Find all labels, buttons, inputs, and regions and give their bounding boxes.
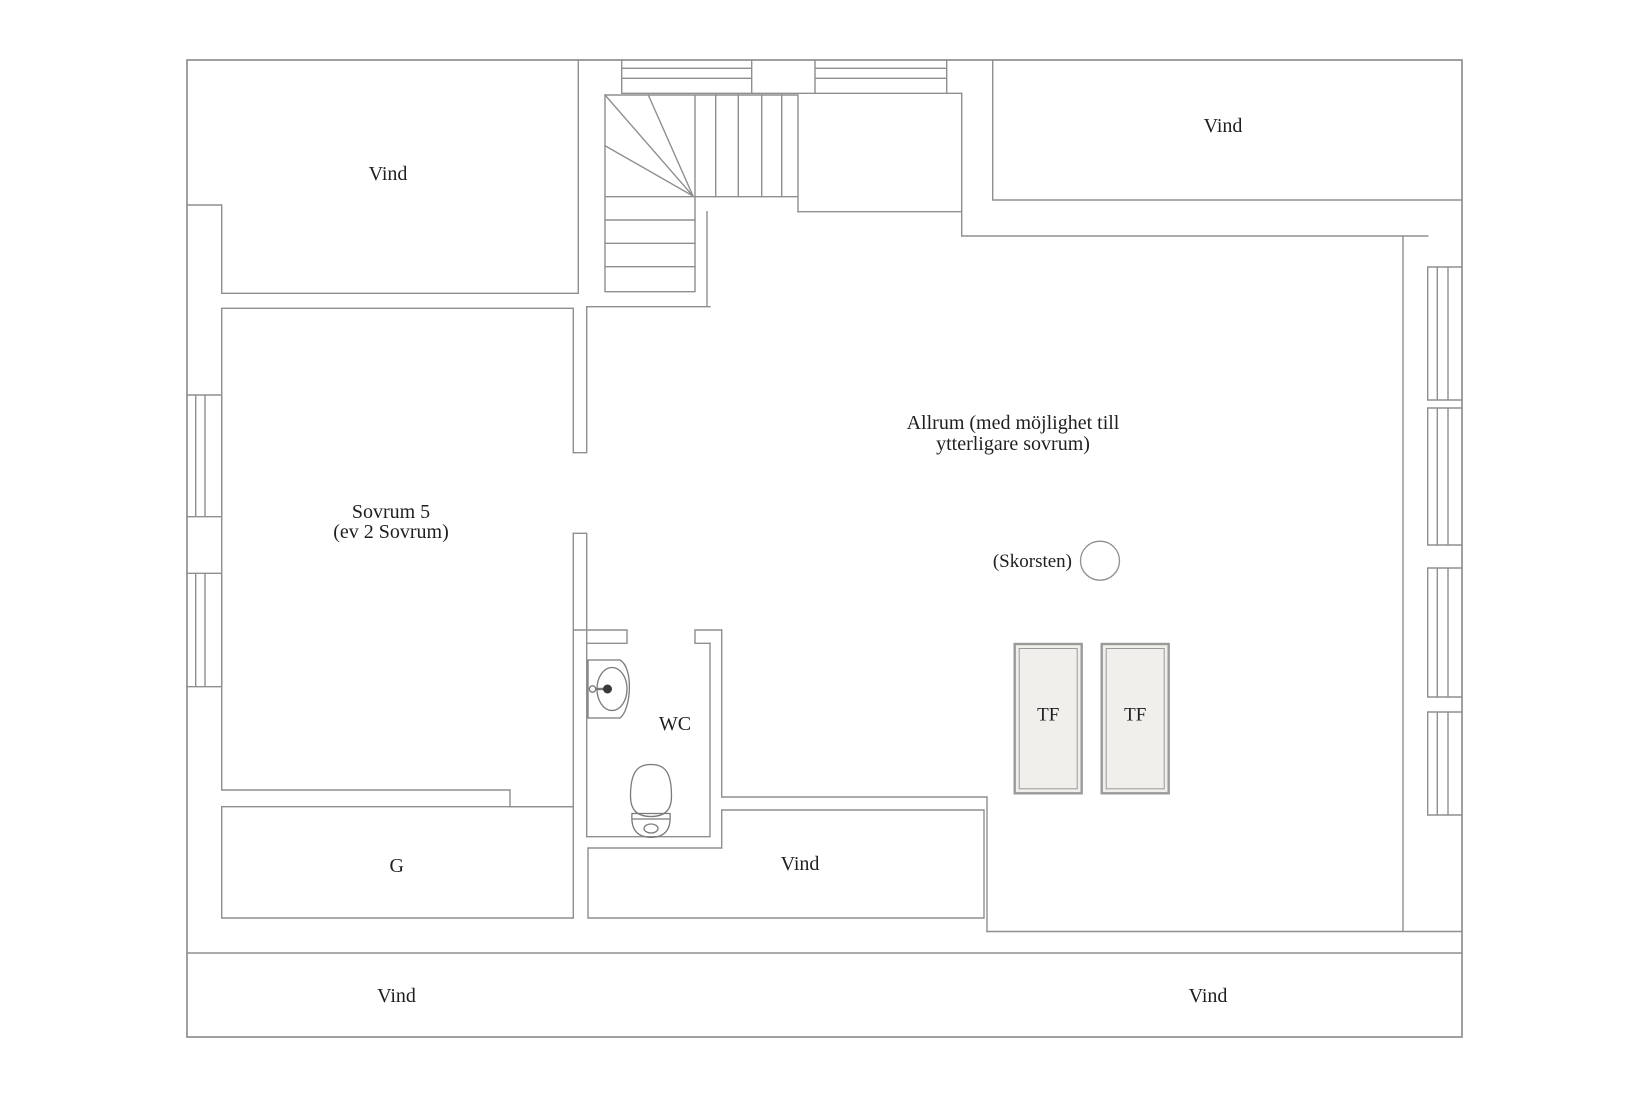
toilet-flush-button [644,824,658,833]
walls-group [187,60,1462,1037]
chimney-label: (Skorsten) [993,551,1072,572]
room-label-wc: WC [659,713,691,735]
room-label-allrum-line1: Allrum (med möjlighet till [907,412,1120,434]
skylight-label-tf-left: TF [1037,705,1059,726]
room-label-vind-bottom-right: Vind [1189,985,1228,1007]
wc-south-east-walls [587,630,722,837]
wc-walls [573,630,721,837]
stair-outline [605,95,798,292]
wc-north-wall-left [573,630,627,643]
staircase [605,95,962,292]
stair-upper-risers [716,95,782,197]
sovrum-outline [222,308,574,806]
room-label-sovrum-line2: (ev 2 Sovrum) [333,521,449,543]
sink-tap-handle [589,686,595,692]
top-window-right [815,60,947,93]
stair-lower-risers [605,220,695,267]
outer-wall [187,60,1462,1037]
east-wall-windows [1428,267,1462,815]
left-wall-windows [187,395,222,687]
floor-plan-drawing: Vind Vind Sovrum 5 (ev 2 Sovrum) Allrum … [0,0,1650,1100]
labels-group: Vind Vind Sovrum 5 (ev 2 Sovrum) Allrum … [333,115,1242,1007]
top-wall-windows [622,60,962,93]
room-label-garderob: G [389,855,403,877]
toilet-bowl [631,765,672,817]
top-window-left [622,60,752,93]
east-window-2 [1428,408,1462,545]
sink-symbol [588,660,629,718]
hall-west-wall [573,307,586,837]
left-window-upper [187,395,222,517]
room-label-vind-top-left: Vind [369,163,408,185]
east-window-4 [1428,712,1462,815]
chimney-circle [1081,541,1120,580]
east-window-1 [1428,267,1462,400]
east-window-3 [1428,568,1462,697]
allrum-east-south-wall [987,236,1462,932]
wc-north-wall-right [695,630,722,643]
sink-tap-base [603,685,612,694]
stair-winder-treads [605,95,693,196]
skylight-label-tf-right: TF [1124,705,1146,726]
left-window-lower [187,573,222,686]
room-label-vind-middle: Vind [781,853,820,875]
room-label-vind-top-right: Vind [1204,115,1243,137]
allrum-north-wall [962,93,1428,236]
room-label-allrum-line2: ytterligare sovrum) [936,433,1090,455]
floor-plan-page: Vind Vind Sovrum 5 (ev 2 Sovrum) Allrum … [0,0,1650,1100]
room-label-sovrum-line1: Sovrum 5 [352,501,430,523]
toilet-symbol [631,765,672,838]
vind-middle-allrum-face [722,797,987,932]
room-label-vind-bottom-left: Vind [377,985,416,1007]
